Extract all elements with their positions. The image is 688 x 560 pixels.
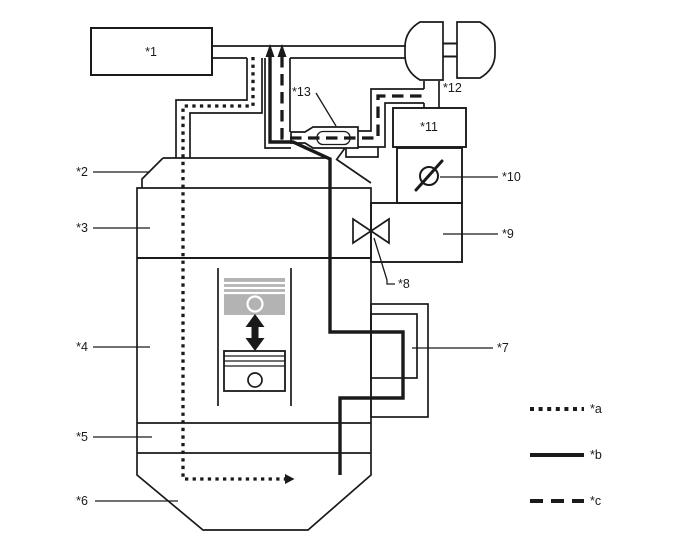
separator-box-7-outer [371, 304, 428, 417]
legend-label-c: *c [590, 494, 601, 508]
separator-box-7-inner [371, 314, 417, 378]
cylinder-piston-detail [218, 268, 291, 406]
leader-8 [374, 238, 395, 284]
label-4: *4 [76, 340, 88, 354]
legend-label-a: *a [590, 402, 602, 416]
label-9: *9 [502, 227, 514, 241]
intake-side-components [353, 108, 466, 417]
label-13: *13 [292, 85, 311, 99]
legend-label-b: *b [590, 448, 602, 462]
valve-cover-outline-2 [142, 158, 371, 188]
turbo-turbine-shape [457, 22, 495, 78]
label-10: *10 [502, 170, 521, 184]
label-2: *2 [76, 165, 88, 179]
turbo-compressor-shape [405, 22, 443, 80]
label-5: *5 [76, 430, 88, 444]
diagram-canvas: *1 *2 *3 *4 *5 *6 *7 *8 *9 *10 *11 *12 *… [0, 0, 688, 560]
air-cleaner-assembly [91, 28, 406, 75]
label-6: *6 [76, 494, 88, 508]
compressor-outlet-pipe-12 [424, 81, 439, 108]
leader-lines [93, 93, 498, 501]
callout-labels: *1 *2 *3 *4 *5 *6 *7 *8 *9 *10 *11 *12 *… [76, 45, 521, 508]
label-7: *7 [497, 341, 509, 355]
label-3: *3 [76, 221, 88, 235]
crankcase-band-lines-5 [137, 423, 371, 453]
label-8: *8 [398, 277, 410, 291]
label-1: *1 [145, 45, 157, 59]
piston-bottom-position [224, 351, 285, 391]
flow-lines [183, 44, 426, 484]
intake-manifold-box-9 [371, 203, 462, 262]
fresh-air-hose-outline [176, 58, 262, 158]
engine-schematic: *1 *2 *3 *4 *5 *6 *7 *8 *9 *10 *11 *12 *… [0, 0, 688, 560]
label-11: *11 [420, 120, 438, 134]
piston-stroke-arrow-icon [246, 314, 265, 351]
leader-13 [316, 93, 336, 126]
turbo-shaft [443, 44, 457, 57]
fresh-air-arrowhead [285, 474, 295, 484]
legend: *a *b *c [530, 402, 602, 508]
label-12: *12 [443, 81, 462, 95]
